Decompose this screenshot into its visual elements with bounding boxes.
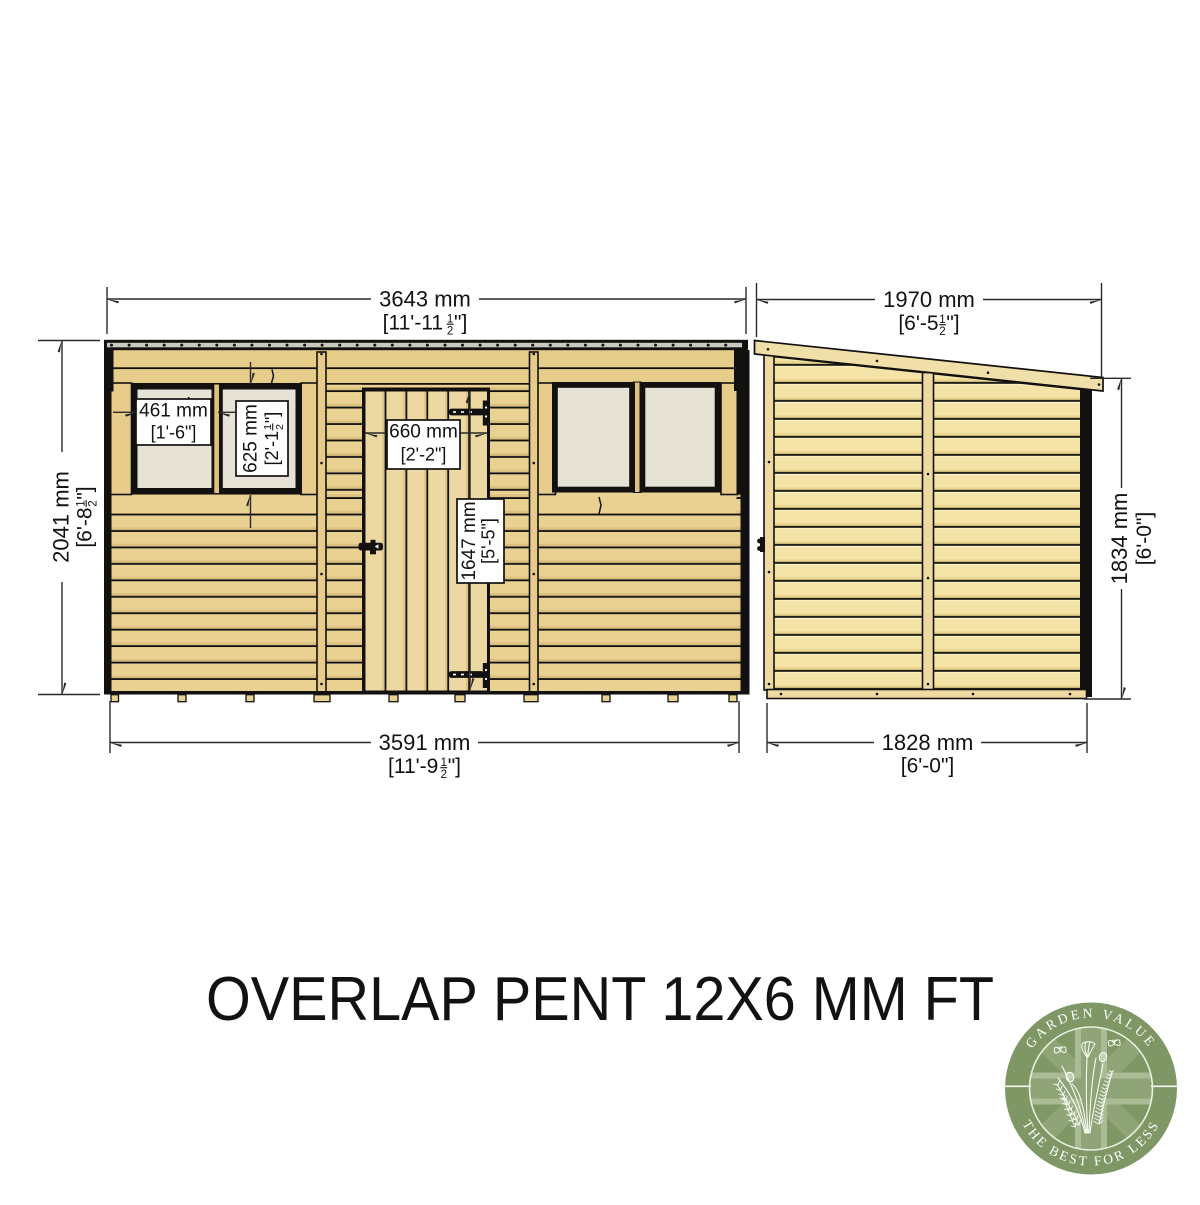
svg-text:2: 2 bbox=[274, 424, 286, 430]
svg-text:"]: "] bbox=[946, 312, 959, 335]
svg-text:660 mm: 660 mm bbox=[389, 422, 458, 443]
svg-text:1647 mm: 1647 mm bbox=[459, 501, 480, 580]
svg-text:625 mm: 625 mm bbox=[241, 404, 262, 473]
svg-text:[11'-11: [11'-11 bbox=[383, 312, 443, 335]
svg-text:1828 mm: 1828 mm bbox=[882, 730, 974, 755]
svg-text:[6'-8: [6'-8 bbox=[74, 507, 97, 547]
svg-text:2: 2 bbox=[441, 769, 447, 781]
svg-text:2041 mm: 2041 mm bbox=[49, 471, 74, 563]
svg-text:[5'-5"]: [5'-5"] bbox=[479, 518, 499, 564]
svg-text:[6'-0"]: [6'-0"] bbox=[1133, 512, 1156, 565]
svg-text:461 mm: 461 mm bbox=[139, 401, 208, 422]
svg-text:3643 mm: 3643 mm bbox=[379, 287, 471, 312]
svg-text:"]: "] bbox=[454, 312, 467, 335]
svg-text:1970 mm: 1970 mm bbox=[883, 287, 975, 312]
svg-text:[2'-1: [2'-1 bbox=[262, 431, 282, 465]
svg-text:[1'-6"]: [1'-6"] bbox=[151, 423, 197, 443]
svg-text:"]: "] bbox=[262, 412, 282, 423]
svg-text:2: 2 bbox=[87, 500, 99, 506]
svg-text:2: 2 bbox=[939, 326, 945, 338]
svg-text:[6'-0"]: [6'-0"] bbox=[901, 755, 954, 778]
svg-text:1834 mm: 1834 mm bbox=[1107, 493, 1132, 585]
svg-text:3591 mm: 3591 mm bbox=[379, 730, 471, 755]
svg-text:"]: "] bbox=[74, 486, 97, 499]
svg-text:[11'-9: [11'-9 bbox=[388, 755, 438, 778]
svg-text:[2'-2"]: [2'-2"] bbox=[401, 445, 447, 465]
svg-text:"]: "] bbox=[448, 755, 461, 778]
svg-text:2: 2 bbox=[447, 325, 453, 337]
svg-text:OVERLAP PENT 12X6 MM FT: OVERLAP PENT 12X6 MM FT bbox=[206, 964, 994, 1034]
svg-text:[6'-5: [6'-5 bbox=[898, 312, 938, 335]
